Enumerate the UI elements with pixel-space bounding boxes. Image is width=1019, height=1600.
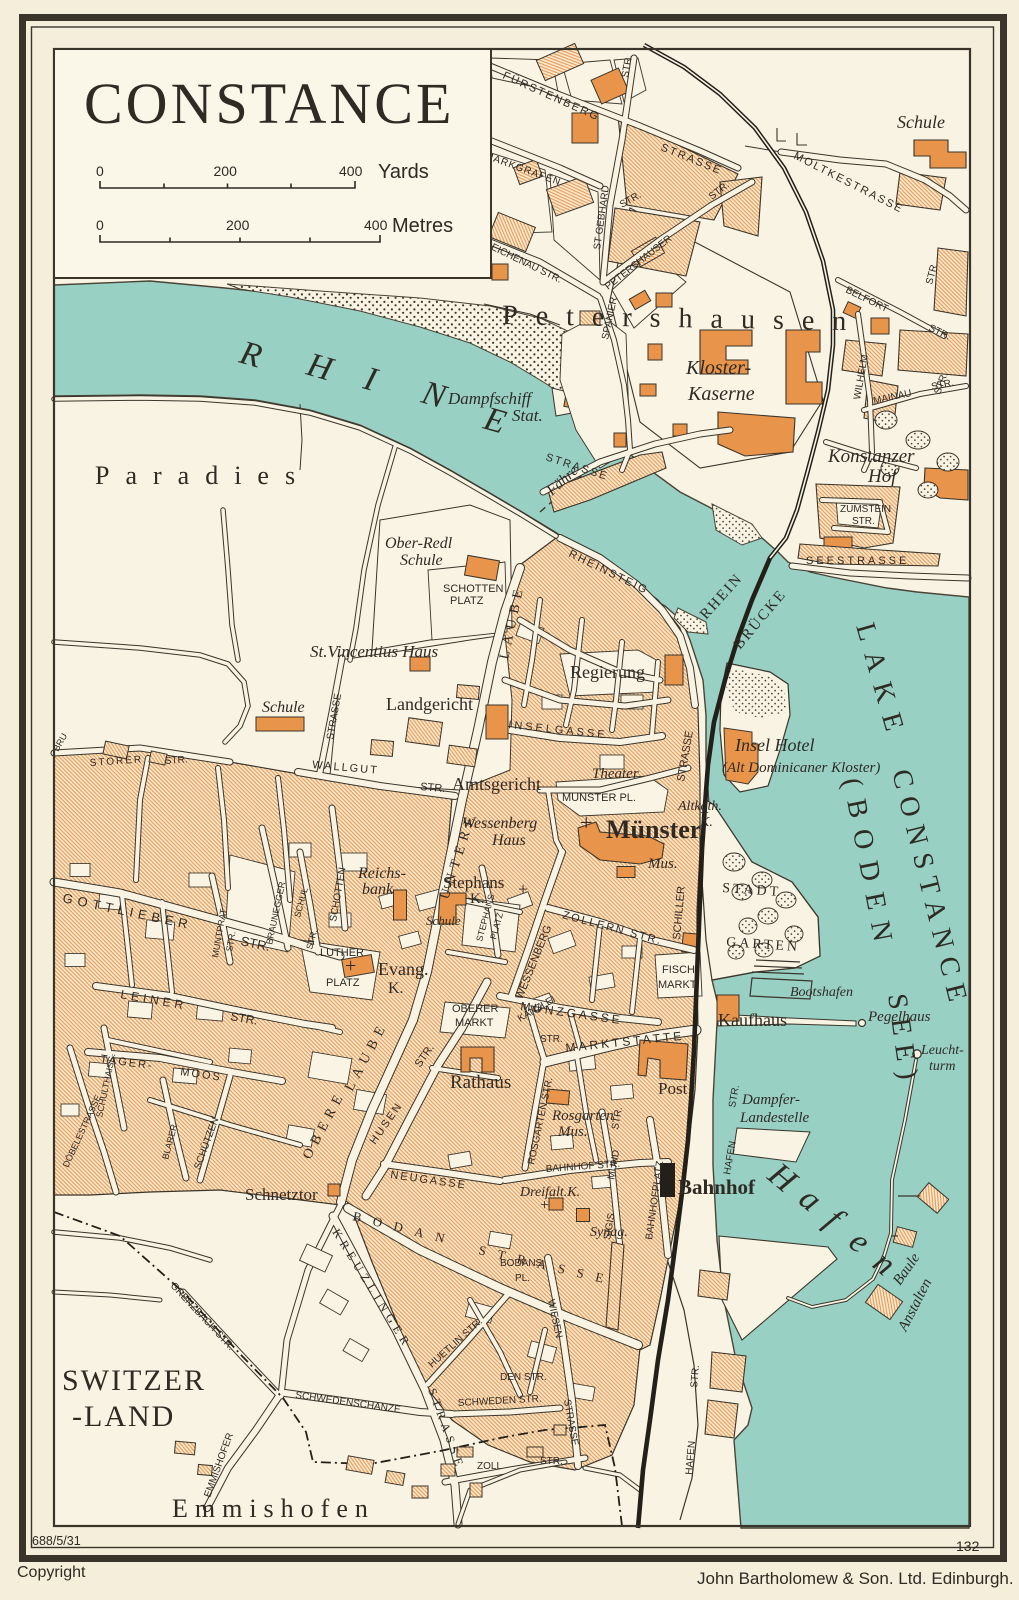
svg-text:ZOLL: ZOLL bbox=[477, 1461, 502, 1472]
svg-text:Insel Hotel: Insel Hotel bbox=[734, 735, 814, 755]
svg-text:PLATZ: PLATZ bbox=[326, 977, 360, 989]
svg-text:Schule: Schule bbox=[426, 913, 461, 928]
svg-text:400: 400 bbox=[339, 163, 363, 179]
svg-text:Mus.: Mus. bbox=[647, 856, 678, 872]
svg-text:PLATZ: PLATZ bbox=[450, 595, 484, 607]
svg-text:Altkath.: Altkath. bbox=[677, 799, 722, 814]
svg-text:Rosgarten: Rosgarten bbox=[551, 1108, 614, 1124]
svg-text:Metres: Metres bbox=[392, 215, 453, 237]
svg-text:Haus: Haus bbox=[491, 832, 526, 849]
svg-text:Regierung: Regierung bbox=[570, 662, 645, 682]
svg-text:Rathaus: Rathaus bbox=[450, 1072, 511, 1093]
svg-text:STR.: STR. bbox=[420, 781, 446, 795]
svg-text:Bootshafen: Bootshafen bbox=[790, 985, 853, 1000]
svg-text:STR.: STR. bbox=[540, 1456, 563, 1467]
svg-text:200: 200 bbox=[214, 163, 238, 179]
svg-text:Schnetztor: Schnetztor bbox=[245, 1185, 318, 1204]
svg-text:DEN STR.: DEN STR. bbox=[500, 1372, 547, 1383]
svg-text:St.Vincentius Haus: St.Vincentius Haus bbox=[310, 642, 438, 661]
svg-text:Theater: Theater bbox=[592, 766, 639, 782]
svg-text:bank: bank bbox=[362, 881, 394, 898]
svg-text:Schule: Schule bbox=[400, 552, 443, 569]
svg-text:Bahnhof: Bahnhof bbox=[678, 1175, 756, 1199]
svg-text:CONSTANCE: CONSTANCE bbox=[84, 71, 454, 136]
svg-text:SWITZER: SWITZER bbox=[62, 1364, 206, 1397]
svg-text:Pegelhaus: Pegelhaus bbox=[867, 1009, 931, 1025]
svg-text:Emmishofen: Emmishofen bbox=[172, 1494, 375, 1523]
svg-text:Schule: Schule bbox=[897, 112, 945, 132]
svg-text:Landestelle: Landestelle bbox=[739, 1110, 809, 1126]
svg-text:Hof: Hof bbox=[867, 466, 899, 487]
svg-text:SEESTRASSE: SEESTRASSE bbox=[806, 555, 909, 567]
svg-text:Petershausen: Petershausen bbox=[502, 300, 865, 337]
svg-text:LUTHER: LUTHER bbox=[320, 947, 364, 959]
svg-text:Münster: Münster bbox=[606, 815, 701, 844]
svg-text:Post: Post bbox=[658, 1079, 688, 1098]
svg-text:Mus.: Mus. bbox=[557, 1124, 588, 1140]
svg-text:Evang.: Evang. bbox=[378, 959, 428, 979]
svg-text:FISCH: FISCH bbox=[662, 964, 695, 976]
svg-text:K.: K. bbox=[699, 815, 713, 830]
svg-text:Kaserne: Kaserne bbox=[687, 383, 755, 405]
svg-text:ZUMSTEIN: ZUMSTEIN bbox=[840, 504, 891, 515]
svg-text:K.: K. bbox=[470, 891, 485, 907]
svg-text:MARKT: MARKT bbox=[455, 1017, 494, 1029]
svg-text:Paradies: Paradies bbox=[95, 461, 311, 490]
svg-text:Landgericht: Landgericht bbox=[386, 694, 473, 714]
svg-text:John Bartholomew & Son. Ltd. E: John Bartholomew & Son. Ltd. Edinburgh. bbox=[697, 1569, 1014, 1588]
svg-text:Ober-Redl: Ober-Redl bbox=[385, 535, 453, 552]
svg-text:Kaufhaus: Kaufhaus bbox=[718, 1010, 787, 1030]
svg-text:200: 200 bbox=[226, 217, 250, 233]
svg-text:STR.: STR. bbox=[852, 516, 875, 527]
svg-text:STR.: STR. bbox=[164, 754, 187, 767]
svg-text:MUNSTER PL.: MUNSTER PL. bbox=[562, 792, 636, 804]
svg-text:PL.: PL. bbox=[515, 1273, 530, 1284]
svg-text:Stat.: Stat. bbox=[512, 406, 543, 425]
svg-text:OBERER: OBERER bbox=[452, 1003, 499, 1015]
svg-text:MARKT: MARKT bbox=[658, 979, 697, 991]
svg-text:Konstanzer: Konstanzer bbox=[827, 446, 915, 467]
svg-text:400: 400 bbox=[364, 217, 388, 233]
svg-text:BODANS: BODANS bbox=[500, 1258, 543, 1269]
svg-text:Yards: Yards bbox=[378, 161, 429, 183]
svg-text:Amtsgericht: Amtsgericht bbox=[452, 774, 541, 794]
svg-text:STR.: STR. bbox=[689, 1365, 702, 1389]
svg-text:Dreifalt.K.: Dreifalt.K. bbox=[519, 1185, 580, 1200]
svg-text:Schule: Schule bbox=[262, 699, 305, 716]
svg-text:Dampfer-: Dampfer- bbox=[741, 1092, 800, 1108]
svg-text:+: + bbox=[518, 879, 528, 899]
svg-text:+: + bbox=[580, 810, 592, 835]
svg-text:SCHOTTEN: SCHOTTEN bbox=[443, 583, 504, 595]
svg-text:Leucht-: Leucht- bbox=[920, 1043, 964, 1058]
svg-text:STR.: STR. bbox=[540, 1034, 563, 1045]
svg-text:Reichs-: Reichs- bbox=[357, 865, 406, 882]
svg-text:0: 0 bbox=[96, 217, 104, 233]
svg-text:0: 0 bbox=[96, 163, 104, 179]
svg-text:Kloster-: Kloster- bbox=[685, 357, 751, 379]
svg-text:K.: K. bbox=[388, 980, 404, 997]
svg-text:Copyright: Copyright bbox=[17, 1564, 86, 1581]
svg-text:688/5/31: 688/5/31 bbox=[32, 1534, 81, 1548]
svg-text:(Alt Dominicaner Kloster): (Alt Dominicaner Kloster) bbox=[722, 760, 880, 776]
svg-text:132: 132 bbox=[956, 1538, 980, 1554]
svg-text:-LAND: -LAND bbox=[72, 1400, 175, 1433]
svg-text:turm: turm bbox=[929, 1059, 955, 1074]
